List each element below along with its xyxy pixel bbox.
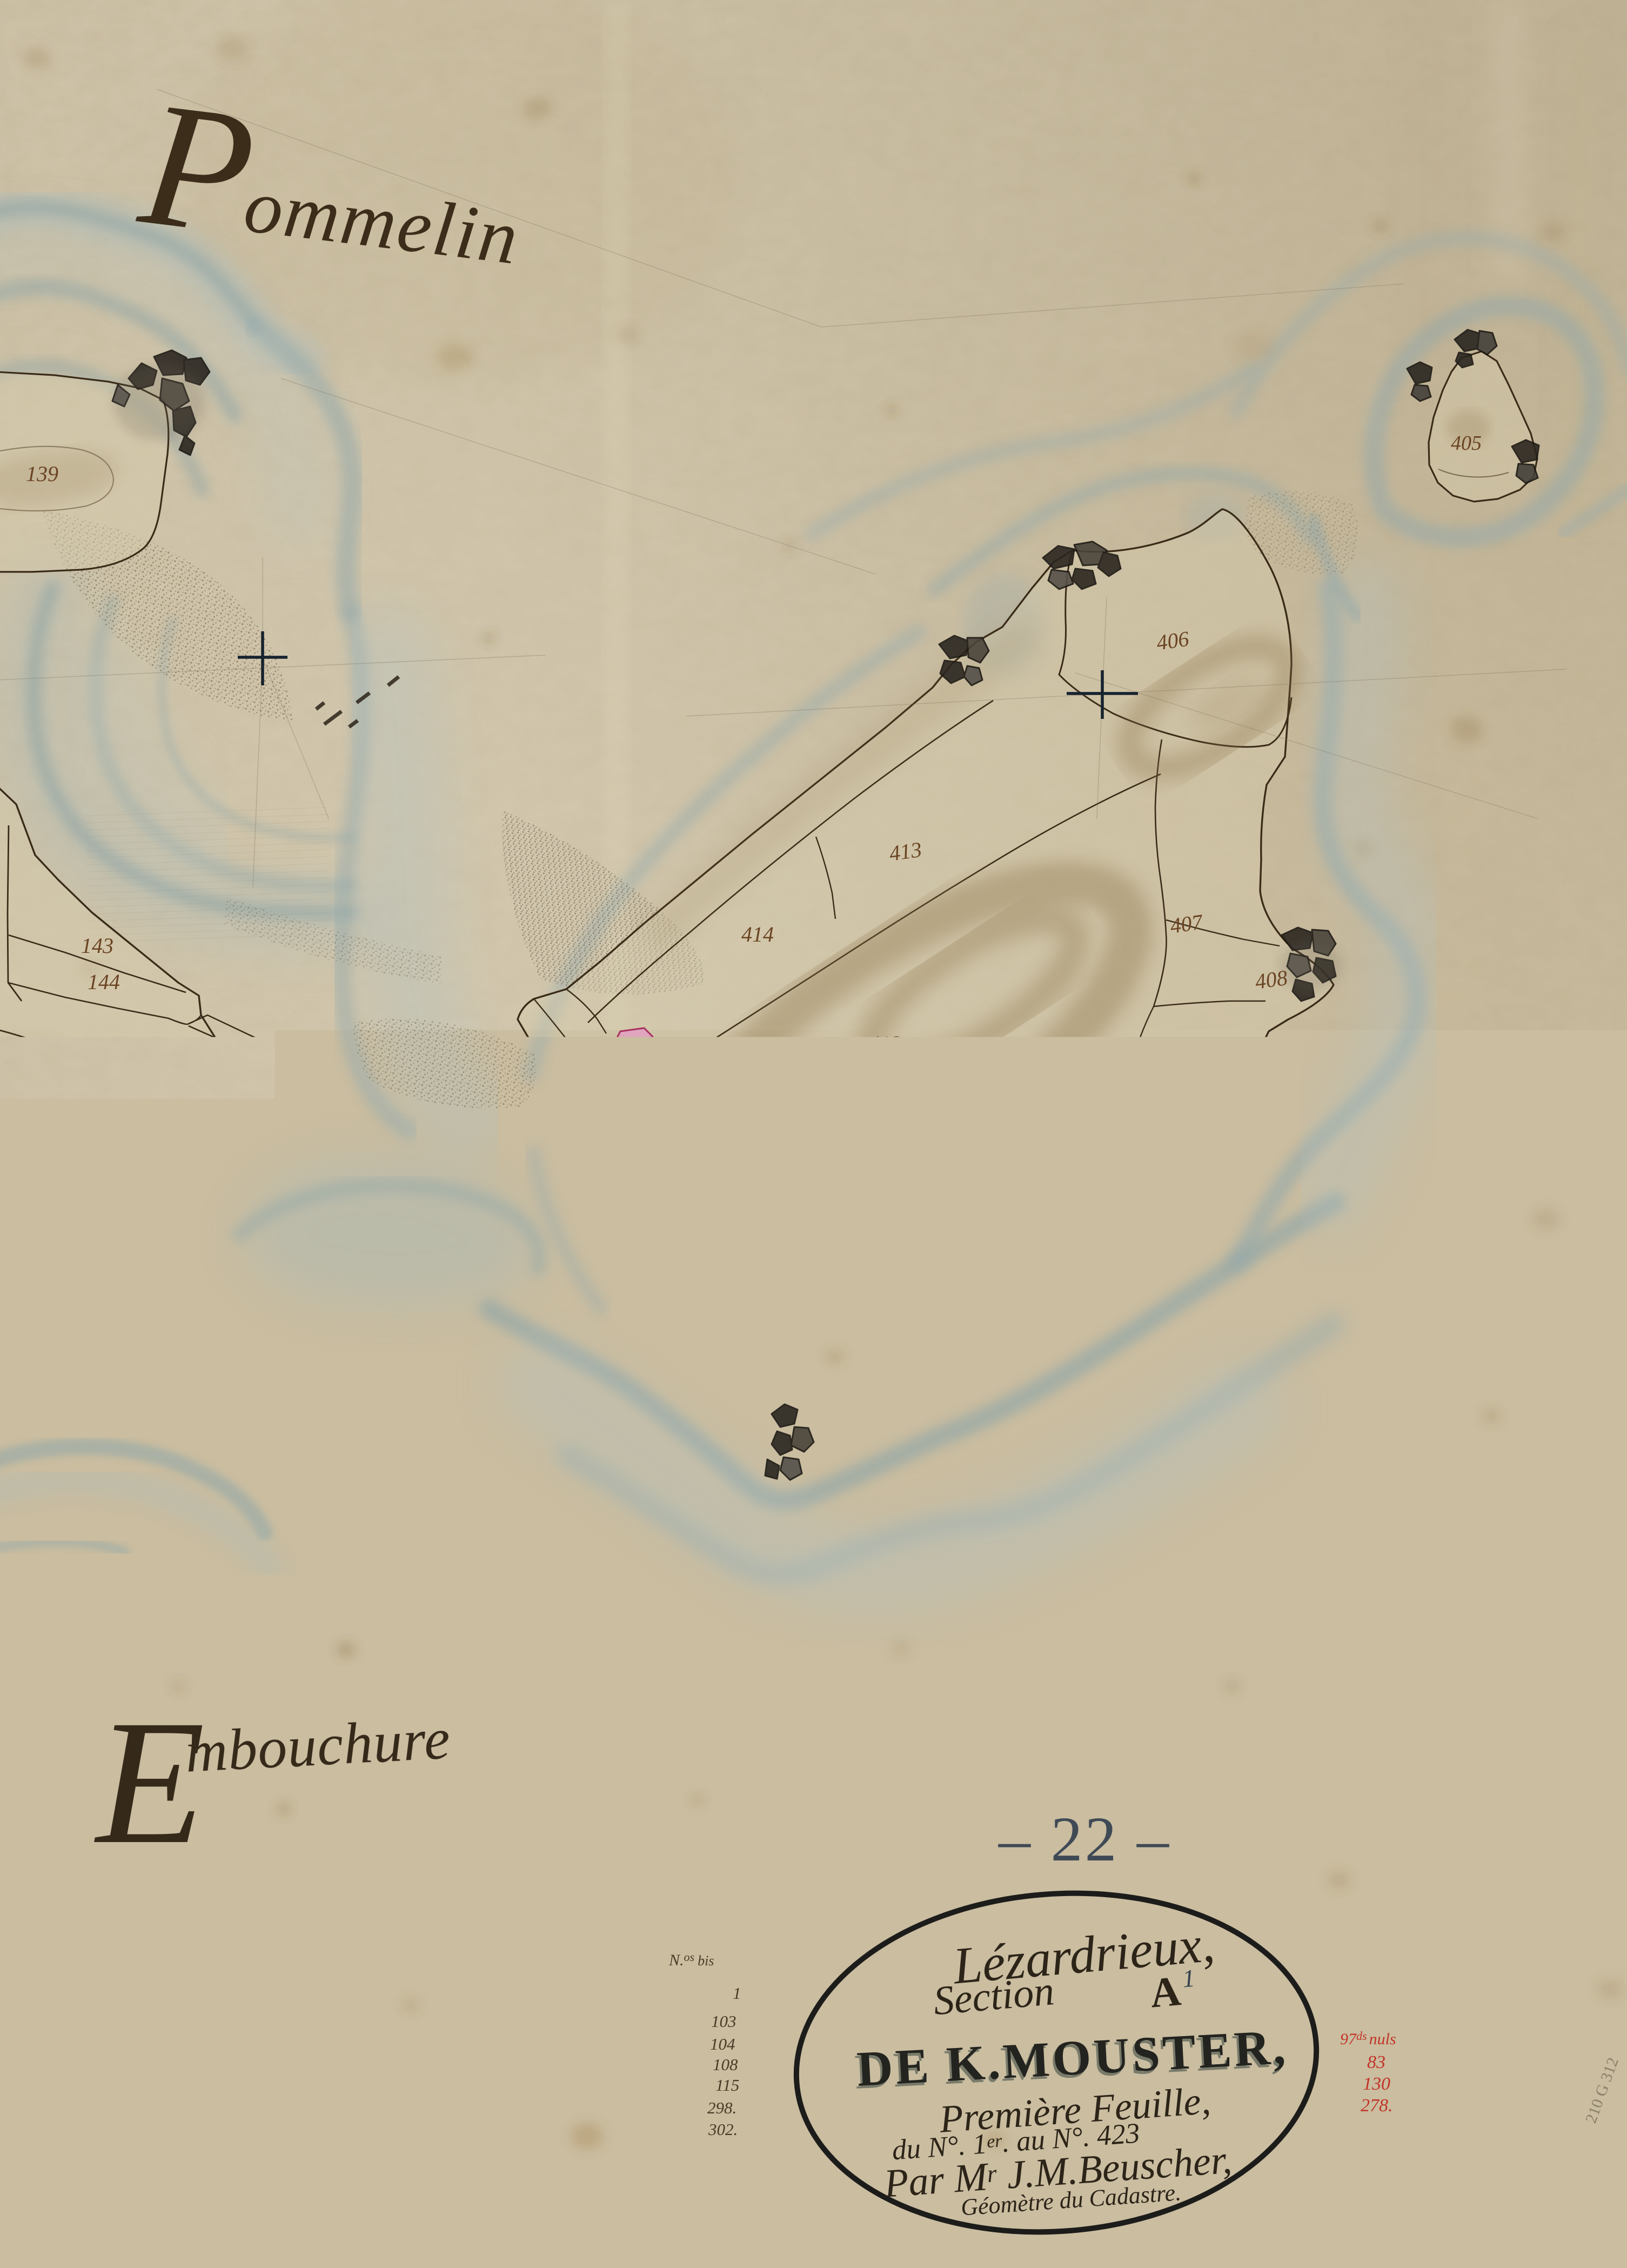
svg-text:103: 103 bbox=[711, 2012, 736, 2031]
svg-text:400: 400 bbox=[42, 1045, 75, 1070]
svg-text:302.: 302. bbox=[708, 2120, 738, 2139]
svg-text:A: A bbox=[1148, 1967, 1183, 2017]
svg-text:412: 412 bbox=[869, 1031, 901, 1056]
svg-text:18: 18 bbox=[588, 1081, 607, 1103]
svg-text:m.: m. bbox=[1543, 1537, 1560, 1556]
svg-text:409: 409 bbox=[1147, 1033, 1183, 1062]
svg-text:421: 421 bbox=[799, 1276, 831, 1300]
svg-text:411: 411 bbox=[1017, 1211, 1045, 1232]
svg-text:408: 408 bbox=[1254, 965, 1289, 994]
svg-text:410: 410 bbox=[1078, 1113, 1110, 1137]
svg-text:403: 403 bbox=[115, 1188, 147, 1212]
svg-text:115: 115 bbox=[715, 2076, 739, 2094]
svg-text:1: 1 bbox=[733, 1984, 741, 2003]
svg-text:104: 104 bbox=[710, 2034, 735, 2053]
svg-text:420: 420 bbox=[531, 1128, 561, 1151]
svg-text:– 22 –: – 22 – bbox=[998, 1804, 1171, 1875]
svg-text:83: 83 bbox=[1367, 2052, 1385, 2072]
svg-text:401: 401 bbox=[177, 1057, 210, 1082]
svg-text:407: 407 bbox=[1169, 909, 1206, 938]
svg-text:384: 384 bbox=[0, 1382, 25, 1406]
svg-text:130: 130 bbox=[1363, 2074, 1390, 2094]
svg-text:415: 415 bbox=[748, 1085, 776, 1105]
svg-text:L’Ile à Bois: L’Ile à Bois bbox=[614, 1122, 917, 1184]
svg-text:383: 383 bbox=[20, 1406, 53, 1431]
svg-text:405: 405 bbox=[1451, 432, 1482, 455]
svg-text:397: 397 bbox=[32, 1186, 66, 1210]
svg-text:423 D: 423 D bbox=[671, 1366, 725, 1390]
svg-text:422: 422 bbox=[588, 1259, 620, 1284]
svg-text:417: 417 bbox=[610, 1050, 640, 1072]
svg-text:du: du bbox=[697, 1658, 767, 1736]
svg-text:406: 406 bbox=[1155, 626, 1190, 655]
svg-text:404: 404 bbox=[136, 1282, 169, 1306]
svg-text:108: 108 bbox=[713, 2055, 738, 2074]
svg-text:278.: 278. bbox=[1361, 2096, 1393, 2116]
svg-text:402: 402 bbox=[172, 1143, 204, 1167]
svg-text:1: 1 bbox=[1181, 1964, 1196, 1993]
svg-text:416: 416 bbox=[642, 1079, 671, 1100]
svg-text:414: 414 bbox=[741, 922, 774, 946]
svg-text:413: 413 bbox=[888, 837, 923, 866]
svg-text:144: 144 bbox=[88, 970, 120, 994]
svg-text:298.: 298. bbox=[707, 2098, 736, 2117]
svg-text:143: 143 bbox=[81, 933, 113, 958]
svg-text:139: 139 bbox=[26, 462, 58, 486]
